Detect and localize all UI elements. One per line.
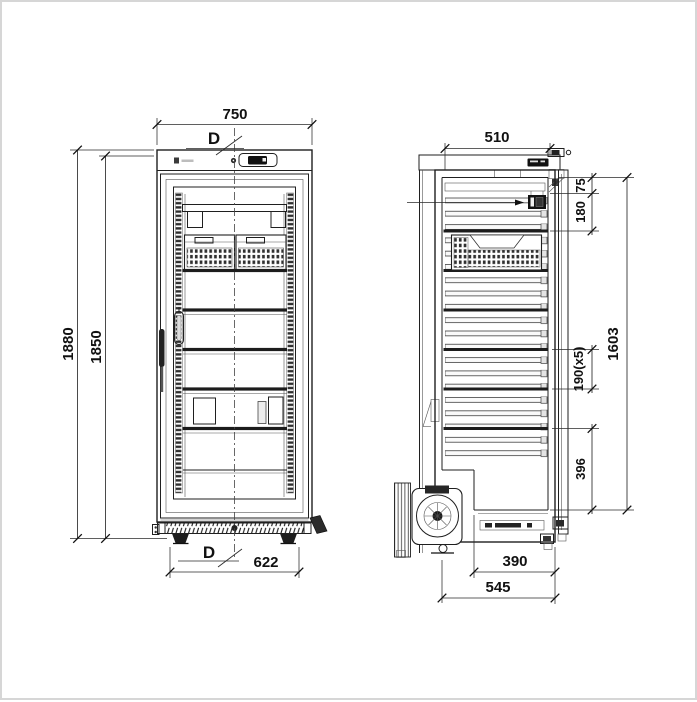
evaporator-fan [528, 191, 546, 209]
brand-logo [174, 158, 194, 164]
dim-front-base-width: 622 [253, 554, 278, 571]
dim-side-shelf-pitch: 190(x5) [571, 347, 586, 392]
dim-side-bottom-gap: 396 [573, 458, 588, 480]
control-display-side [528, 159, 549, 167]
basket-left [185, 235, 235, 270]
shelf-bin-right [269, 397, 284, 424]
shelf-rail-right [287, 193, 294, 493]
control-display [231, 154, 277, 167]
dim-side-interior-height: 1603 [605, 327, 622, 360]
dimension-interior-1603: 1603 [605, 173, 631, 514]
basket-right [236, 235, 286, 270]
shelf-rail-left [176, 193, 183, 493]
door-handle [159, 329, 165, 392]
front-view: 750 D 1880 1850 D [60, 106, 327, 578]
door-ref-top: D [186, 129, 244, 155]
shelf-bin-left [194, 398, 216, 424]
dim-side-evap-zone: 180 [573, 201, 588, 223]
door-ref-bottom: D [178, 543, 242, 567]
basket-side-profile [452, 235, 542, 270]
dim-side-floor-depth: 390 [502, 553, 527, 570]
dim-front-width: 750 [222, 106, 247, 123]
dimension-floor-390: 390 [470, 515, 560, 604]
compressor-fan [395, 483, 463, 558]
shelf-card [258, 402, 266, 424]
dimension-base-545: 545 [438, 560, 560, 603]
foot-pedal [310, 516, 327, 534]
dimension-height-1850: 1850 [88, 152, 154, 543]
dimension-height-1880: 1880 [60, 146, 167, 543]
drawing-canvas: 750 D 1880 1850 D [0, 0, 697, 700]
side-view: 510 75 180 190(x5) 396 1603 [395, 129, 635, 604]
dim-door-ref-top: D [208, 129, 220, 148]
dim-door-ref-bottom: D [203, 543, 215, 562]
dim-side-depth: 510 [484, 129, 509, 146]
dim-front-height-body: 1850 [88, 330, 105, 363]
drain-pan [480, 521, 544, 531]
dim-side-top-gap: 75 [573, 178, 588, 192]
dim-front-height-total: 1880 [60, 327, 77, 360]
dimension-drawing: 750 D 1880 1850 D [2, 2, 697, 702]
dim-side-base-depth: 545 [485, 579, 510, 596]
